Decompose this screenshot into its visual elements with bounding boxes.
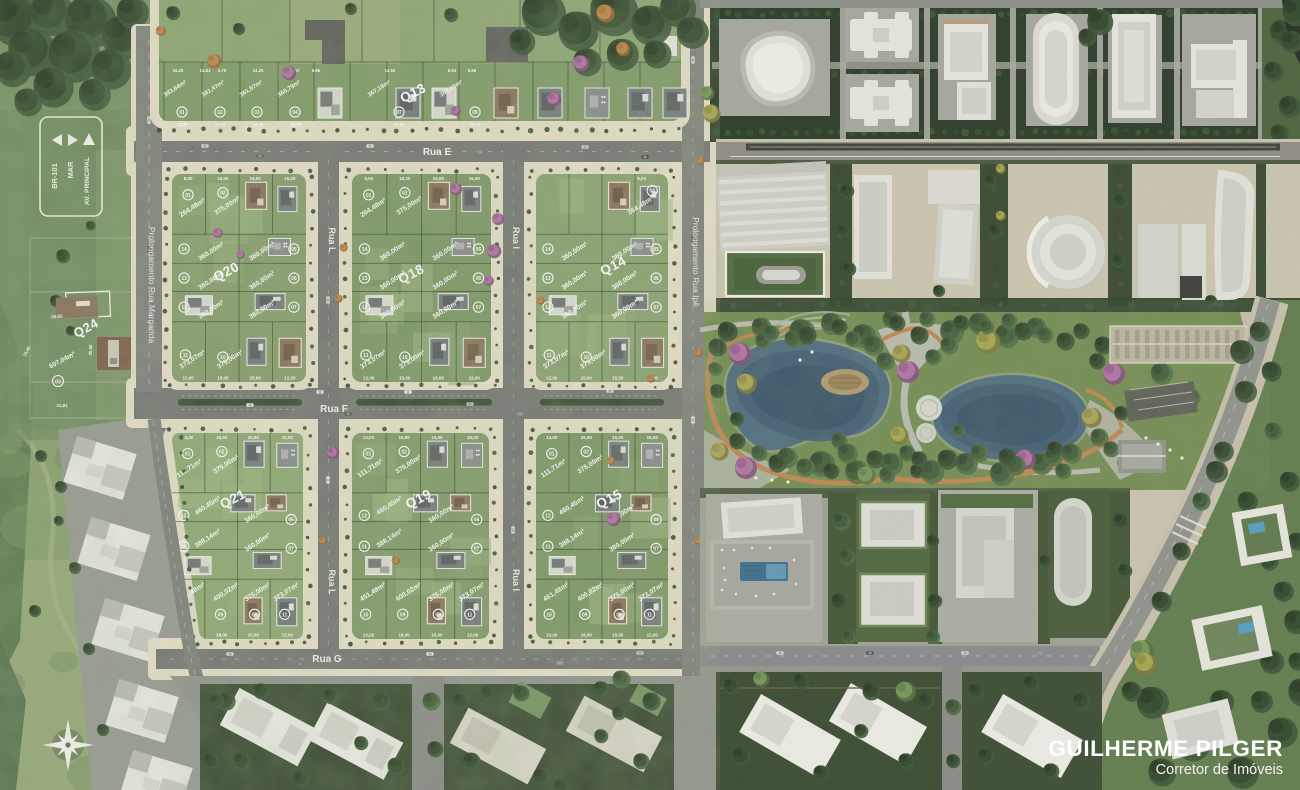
svg-text:GUILHERME PILGER: GUILHERME PILGER <box>1048 736 1283 761</box>
svg-text:Corretor de Imóveis: Corretor de Imóveis <box>1156 762 1283 778</box>
